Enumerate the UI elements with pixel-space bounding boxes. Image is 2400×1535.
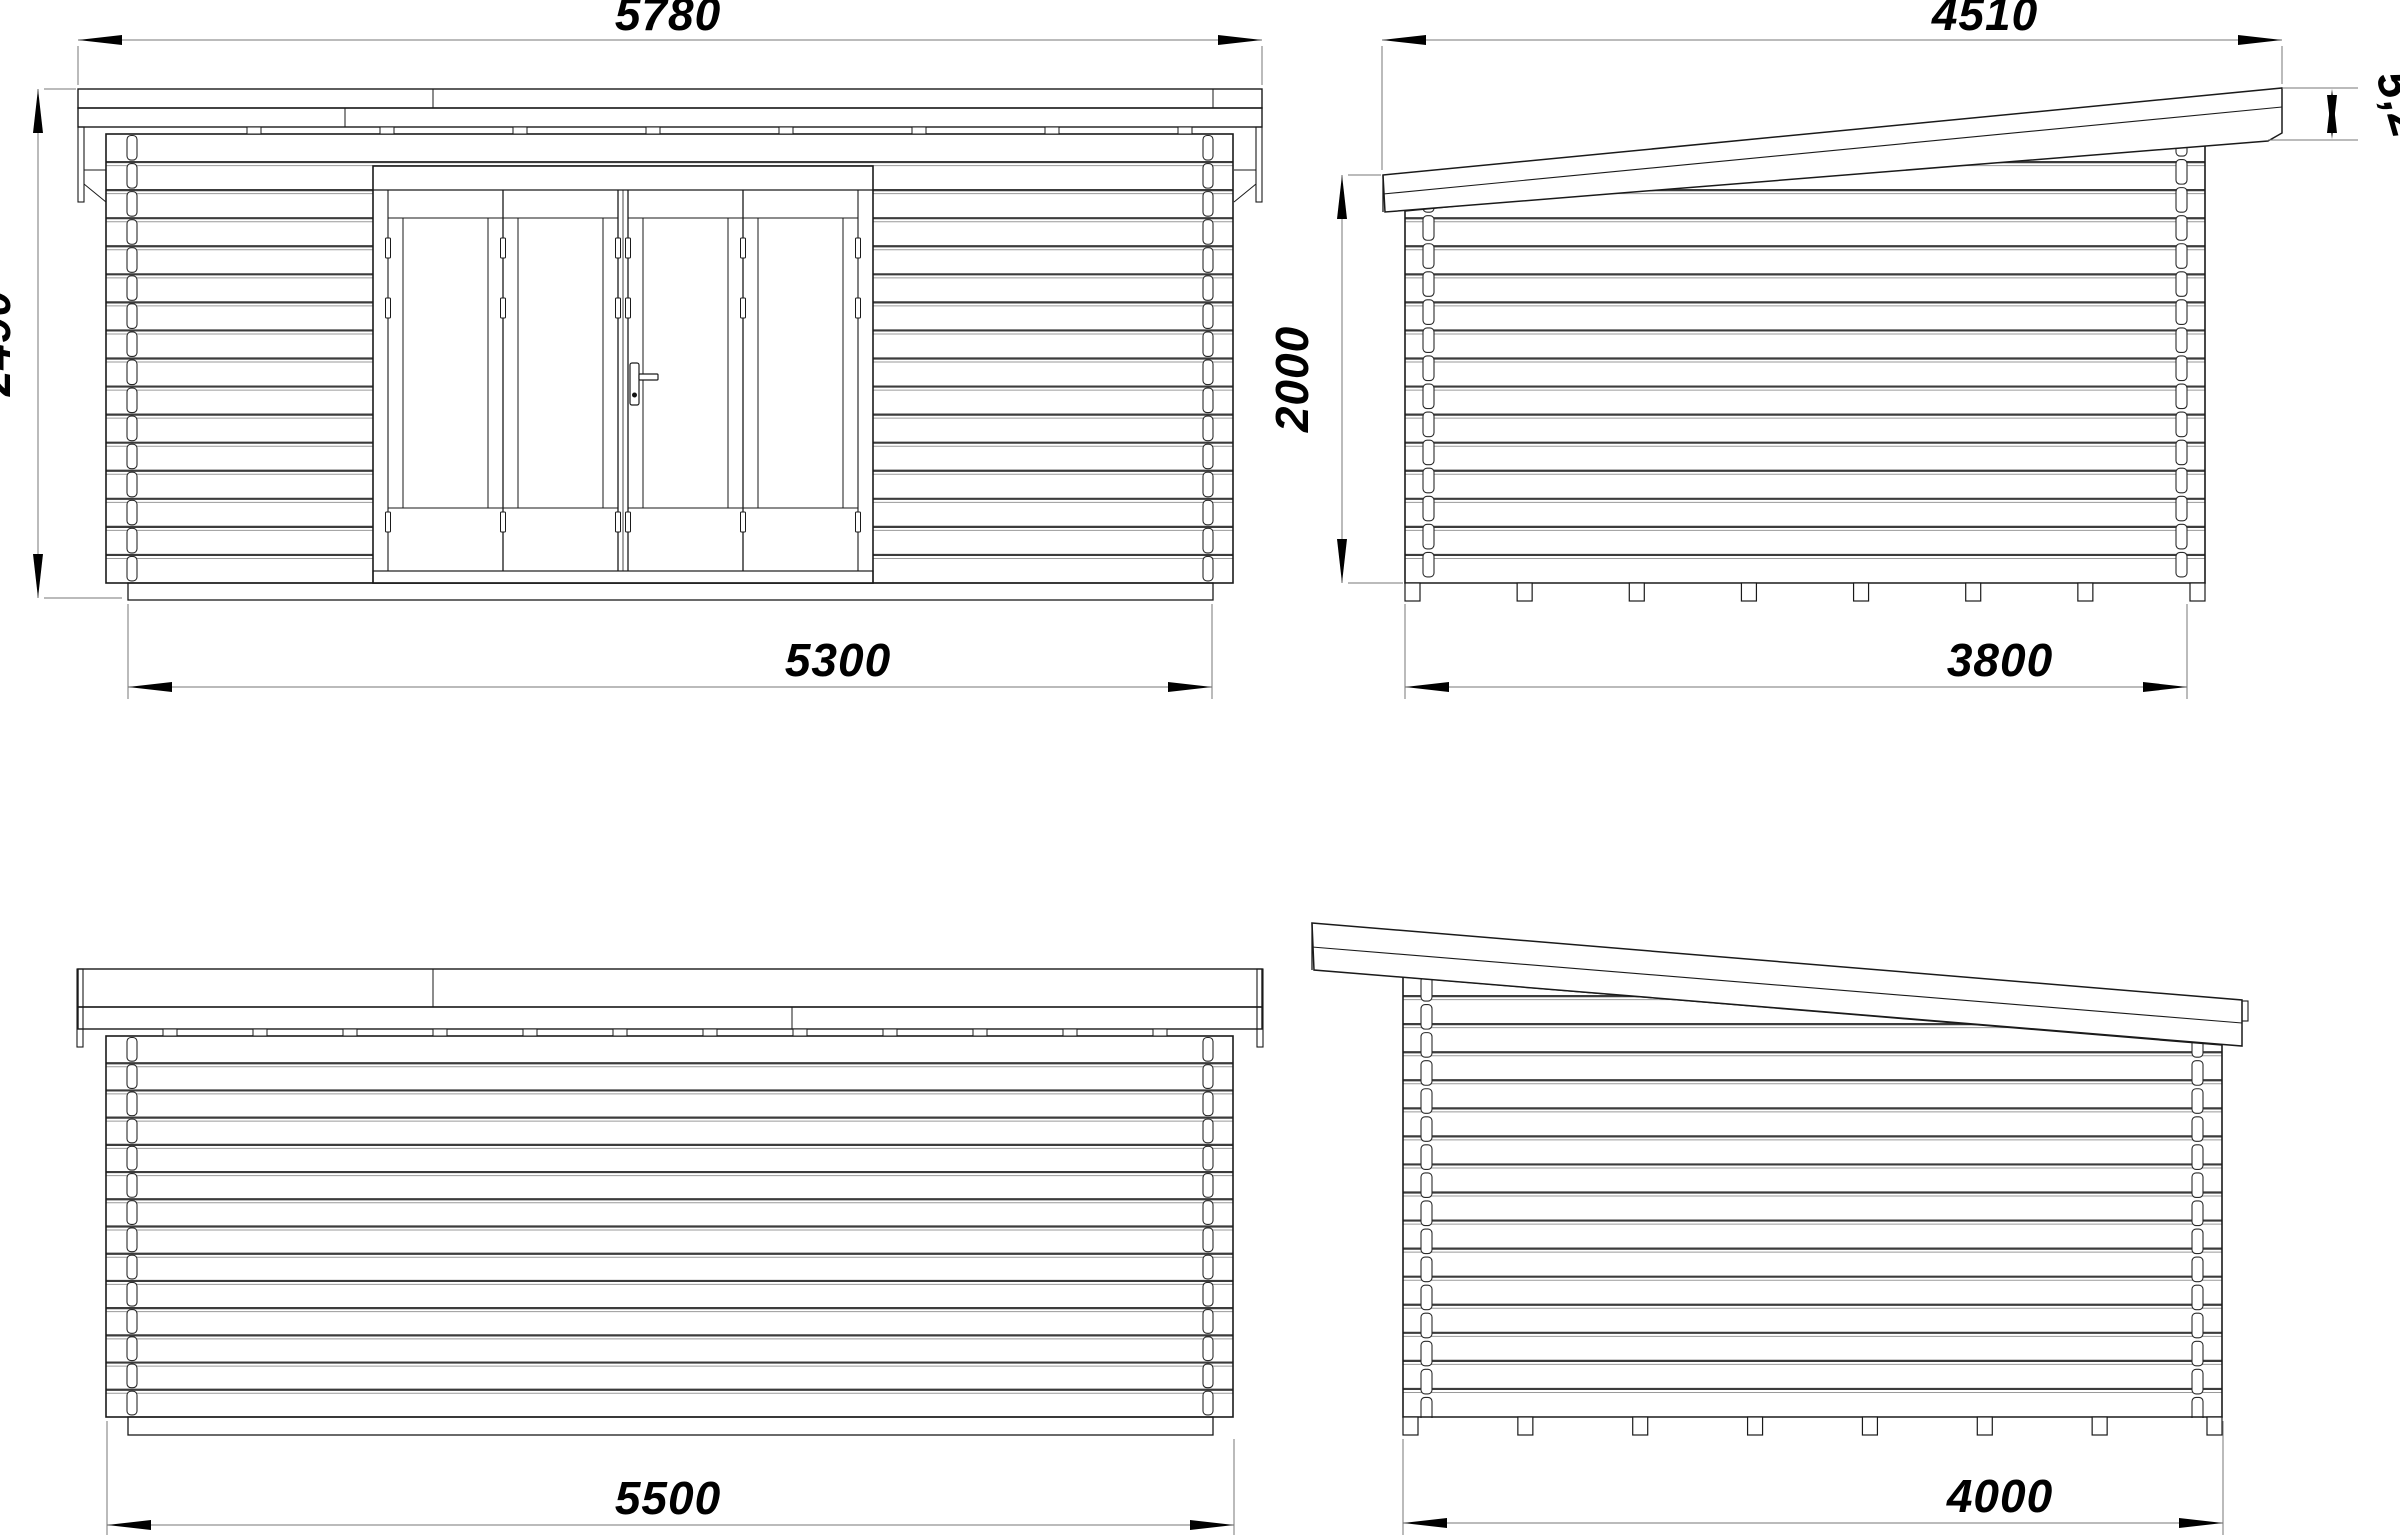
foundation-block: [1517, 583, 1532, 601]
corner-notch-cell: [127, 1364, 137, 1388]
corner-notch-cell: [1203, 1038, 1213, 1062]
corner-notch-cell: [127, 1065, 137, 1089]
rafter-tab: [380, 127, 394, 134]
corner-notch-cell: [127, 1092, 137, 1116]
corner-notch-cell: [2176, 272, 2187, 297]
door-hinge: [856, 238, 861, 258]
corner-notch-cell: [127, 388, 137, 413]
corner-notch-cell: [1423, 496, 1434, 521]
corner-notch-cell: [1203, 276, 1213, 301]
corner-notch-cell: [2176, 216, 2187, 241]
corner-notch-cell: [127, 556, 137, 581]
corner-notch-cell: [127, 528, 137, 553]
corner-notch-cell: [1423, 440, 1434, 465]
door-hinge: [386, 298, 391, 318]
corner-notch-cell: [1203, 1255, 1213, 1279]
corner-notch-cell: [1203, 1337, 1213, 1361]
foundation-block: [1405, 583, 1420, 601]
dimension-arrow: [2238, 35, 2282, 45]
dimension-arrow: [1337, 539, 1347, 583]
roof-fascia-board: [78, 969, 1262, 1007]
corner-notch-cell: [2192, 1201, 2203, 1226]
corner-notch-cell: [127, 1391, 137, 1415]
foundation-block: [1966, 583, 1981, 601]
corner-notch-cell: [2176, 468, 2187, 493]
corner-notch-cell: [127, 136, 137, 161]
dimension-arrow: [1337, 175, 1347, 219]
corner-notch-cell: [2192, 1145, 2203, 1170]
side-roof-edge-line: [84, 184, 106, 202]
side-wall-depth-value: 3800: [1947, 634, 2053, 686]
side-roof-edge-line: [1234, 184, 1256, 202]
corner-notch-cell: [1203, 192, 1213, 217]
corner-notch-cell: [1421, 1201, 1432, 1226]
corner-notch-cell: [2192, 1285, 2203, 1310]
corner-notch-cell: [1203, 1119, 1213, 1143]
wall-clipped-region: [1403, 968, 2222, 1422]
corner-notch-cell: [127, 472, 137, 497]
corner-notch-cell: [1423, 552, 1434, 577]
corner-notch-cell: [127, 360, 137, 385]
back-overall-width-value: 5500: [615, 1472, 721, 1524]
rafter-tab: [163, 1029, 177, 1036]
corner-notch-cell: [1423, 524, 1434, 549]
corner-notch-cell: [127, 444, 137, 469]
corner-notch-cell: [1203, 360, 1213, 385]
corner-notch-cell: [127, 1310, 137, 1334]
corner-notch-cell: [127, 1201, 137, 1225]
drawing-sheet: 5780 2490 5300 4510 2000 3800 5,2° 5500 …: [0, 0, 2400, 1535]
foundation-block: [1862, 1417, 1877, 1435]
rafter-tab: [613, 1029, 627, 1036]
rafter-tab: [433, 1029, 447, 1036]
corner-notch-cell: [2176, 552, 2187, 577]
corner-notch-cell: [127, 1038, 137, 1062]
dimension-arrow: [1403, 1518, 1447, 1528]
corner-notch-cell: [1421, 1117, 1432, 1142]
left-side-elevation-view: 4000: [1312, 923, 2248, 1535]
wall-outline: [1403, 977, 2222, 1417]
door-hinge: [616, 238, 621, 258]
corner-notch-cell: [1421, 1145, 1432, 1170]
corner-notch-cell: [1421, 1005, 1432, 1030]
corner-notch-cell: [1203, 220, 1213, 245]
corner-notch-cell: [1203, 1174, 1213, 1198]
corner-notch-cell: [1203, 1065, 1213, 1089]
corner-notch-cell: [1203, 500, 1213, 525]
corner-notch-cell: [1203, 332, 1213, 357]
corner-notch-cell: [1203, 416, 1213, 441]
foundation-block: [1977, 1417, 1992, 1435]
door-hinge: [501, 238, 506, 258]
dimension-arrow: [1190, 1520, 1234, 1530]
door-hinge: [626, 238, 631, 258]
roof-fascia-board: [78, 108, 1262, 127]
floor-beam: [128, 583, 1213, 600]
rafter-tab: [793, 1029, 807, 1036]
foundation-block: [1633, 1417, 1648, 1435]
corner-notch-cell: [2176, 496, 2187, 521]
foundation-block: [1403, 1417, 1418, 1435]
corner-notch-cell: [2176, 188, 2187, 213]
corner-notch-cell: [127, 1228, 137, 1252]
corner-notch-cell: [127, 1119, 137, 1143]
rafter-tab: [1153, 1029, 1167, 1036]
rafter-tab: [513, 127, 527, 134]
side-roof-length-value: 4510: [1931, 0, 2038, 40]
dimension-arrow: [1382, 35, 1426, 45]
rafter-tab: [247, 127, 261, 134]
door-keyhole: [632, 393, 637, 398]
door-hinge: [386, 238, 391, 258]
corner-notch-cell: [1423, 216, 1434, 241]
dimension-arrow: [2143, 682, 2187, 692]
corner-notch-cell: [1203, 444, 1213, 469]
dimension-arrow: [128, 682, 172, 692]
corner-notch-cell: [1421, 1257, 1432, 1282]
corner-notch-cell: [1421, 1229, 1432, 1254]
corner-notch-cell: [127, 164, 137, 189]
corner-notch-cell: [2176, 384, 2187, 409]
corner-notch-cell: [1203, 1364, 1213, 1388]
corner-notch-cell: [2176, 356, 2187, 381]
corner-notch-cell: [1203, 528, 1213, 553]
rafter-tab: [912, 127, 926, 134]
back-elevation-view: 5500: [77, 969, 1263, 1535]
rafter-tab: [703, 1029, 717, 1036]
front-roof-width-value: 5780: [615, 0, 721, 40]
side-roof-edge: [1256, 127, 1262, 202]
foundation-block: [1629, 583, 1644, 601]
door-hinge: [856, 298, 861, 318]
corner-notch-cell: [1423, 328, 1434, 353]
corner-notch-cell: [2192, 1397, 2203, 1422]
foundation-block: [2207, 1417, 2222, 1435]
corner-notch-cell: [127, 332, 137, 357]
rafter-tab: [1178, 127, 1192, 134]
front-wall-width-value: 5300: [785, 634, 891, 686]
corner-notch-cell: [1203, 248, 1213, 273]
corner-notch-cell: [1203, 556, 1213, 581]
corner-notch-cell: [2176, 440, 2187, 465]
corner-notch-cell: [1203, 136, 1213, 161]
corner-notch-cell: [1423, 300, 1434, 325]
foundation-block: [2078, 583, 2093, 601]
corner-notch-cell: [1421, 1033, 1432, 1058]
corner-notch-cell: [1421, 1397, 1432, 1422]
door-hinge: [501, 512, 506, 532]
side-eave-height-value: 2000: [1266, 326, 1318, 433]
corner-notch-cell: [1421, 1285, 1432, 1310]
corner-notch-cell: [1203, 1228, 1213, 1252]
rafter-tab: [1063, 1029, 1077, 1036]
corner-notch-cell: [2176, 160, 2187, 185]
side-overall-depth-value: 4000: [1946, 1470, 2053, 1522]
door-handle-lever: [639, 374, 658, 380]
foundation-block: [1748, 1417, 1763, 1435]
corner-notch-cell: [1421, 1089, 1432, 1114]
corner-notch-cell: [127, 1282, 137, 1306]
rafter-tab: [343, 1029, 357, 1036]
front-elevation-view: 5780 2490 5300: [0, 0, 1262, 699]
corner-notch-cell: [1203, 304, 1213, 329]
foundation-block: [1741, 583, 1756, 601]
corner-notch-cell: [1203, 1391, 1213, 1415]
door-hinge: [626, 512, 631, 532]
roof-edge-step: [2242, 1001, 2248, 1021]
corner-notch-cell: [2176, 244, 2187, 269]
door-hinge: [856, 512, 861, 532]
rafter-tab: [646, 127, 660, 134]
corner-notch-cell: [1421, 1061, 1432, 1086]
corner-notch-cell: [2192, 1257, 2203, 1282]
corner-notch-cell: [127, 500, 137, 525]
rafter-tab: [883, 1029, 897, 1036]
door-hinge: [741, 238, 746, 258]
dimension-arrow: [1168, 682, 1212, 692]
rafter-tab: [523, 1029, 537, 1036]
corner-notch-cell: [1203, 1201, 1213, 1225]
corner-notch-cell: [127, 192, 137, 217]
corner-notch-cell: [2176, 412, 2187, 437]
corner-notch-cell: [1203, 1282, 1213, 1306]
door-handle-plate: [630, 363, 639, 405]
door-hinge: [501, 298, 506, 318]
dimension-arrow: [107, 1520, 151, 1530]
front-wall-height-value: 2490: [0, 290, 20, 397]
corner-notch-cell: [2192, 1173, 2203, 1198]
corner-notch-cell: [2192, 1117, 2203, 1142]
foundation-block: [1854, 583, 1869, 601]
door-hinge: [741, 298, 746, 318]
corner-notch-cell: [1203, 1146, 1213, 1170]
corner-notch-cell: [1203, 388, 1213, 413]
technical-drawing-canvas: 5780 2490 5300 4510 2000 3800 5,2° 5500 …: [0, 0, 2400, 1535]
floor-beam: [128, 1417, 1213, 1435]
rafter-tab: [973, 1029, 987, 1036]
corner-notch-cell: [1203, 164, 1213, 189]
dimension-arrow: [33, 89, 43, 133]
right-side-elevation-view: 4510 2000 3800 5,2°: [1266, 0, 2400, 699]
corner-notch-cell: [127, 248, 137, 273]
roof-fascia-board: [78, 1007, 1262, 1029]
roof-fascia-line: [1312, 947, 2242, 1023]
corner-notch-cell: [1423, 384, 1434, 409]
rafter-tab: [253, 1029, 267, 1036]
dimension-arrow: [1218, 35, 1262, 45]
dimension-arrow: [33, 554, 43, 598]
corner-notch-cell: [1421, 1173, 1432, 1198]
corner-notch-cell: [127, 1146, 137, 1170]
corner-notch-cell: [1203, 472, 1213, 497]
corner-notch-cell: [1421, 1313, 1432, 1338]
door-hinge: [616, 512, 621, 532]
corner-notch-cell: [1421, 1341, 1432, 1366]
corner-notch-cell: [2192, 1369, 2203, 1394]
corner-notch-cell: [2176, 524, 2187, 549]
corner-notch-cell: [1421, 1369, 1432, 1394]
corner-notch-cell: [1423, 272, 1434, 297]
corner-notch-cell: [1423, 468, 1434, 493]
foundation-block: [2190, 583, 2205, 601]
corner-notch-cell: [1203, 1310, 1213, 1334]
corner-notch-cell: [1203, 1092, 1213, 1116]
corner-notch-cell: [127, 304, 137, 329]
corner-notch-cell: [127, 1255, 137, 1279]
foundation-block: [2092, 1417, 2107, 1435]
dimension-arrow: [2179, 1518, 2223, 1528]
corner-notch-cell: [1423, 132, 1434, 157]
door-hinge: [386, 512, 391, 532]
dimension-arrow: [78, 35, 122, 45]
roof-fascia-board: [78, 89, 1262, 108]
door-hinge: [626, 298, 631, 318]
corner-notch-cell: [2192, 1061, 2203, 1086]
corner-notch-cell: [2192, 1089, 2203, 1114]
corner-notch-cell: [2192, 1341, 2203, 1366]
corner-notch-cell: [1423, 356, 1434, 381]
rafter-tab: [1045, 127, 1059, 134]
door-hinge: [616, 298, 621, 318]
corner-notch-cell: [127, 1337, 137, 1361]
side-roof-edge: [78, 127, 84, 202]
corner-notch-cell: [127, 1174, 137, 1198]
corner-notch-cell: [1423, 244, 1434, 269]
roof-angle-value: 5,2°: [2366, 65, 2400, 162]
corner-notch-cell: [1423, 412, 1434, 437]
door-hinge: [741, 512, 746, 532]
dimension-arrow: [1405, 682, 1449, 692]
corner-notch-cell: [2192, 1229, 2203, 1254]
corner-notch-cell: [127, 276, 137, 301]
rafter-tab: [779, 127, 793, 134]
corner-notch-cell: [2176, 328, 2187, 353]
corner-notch-cell: [2176, 300, 2187, 325]
corner-notch-cell: [127, 416, 137, 441]
corner-notch-cell: [127, 220, 137, 245]
foundation-block: [1518, 1417, 1533, 1435]
corner-notch-cell: [2192, 1313, 2203, 1338]
